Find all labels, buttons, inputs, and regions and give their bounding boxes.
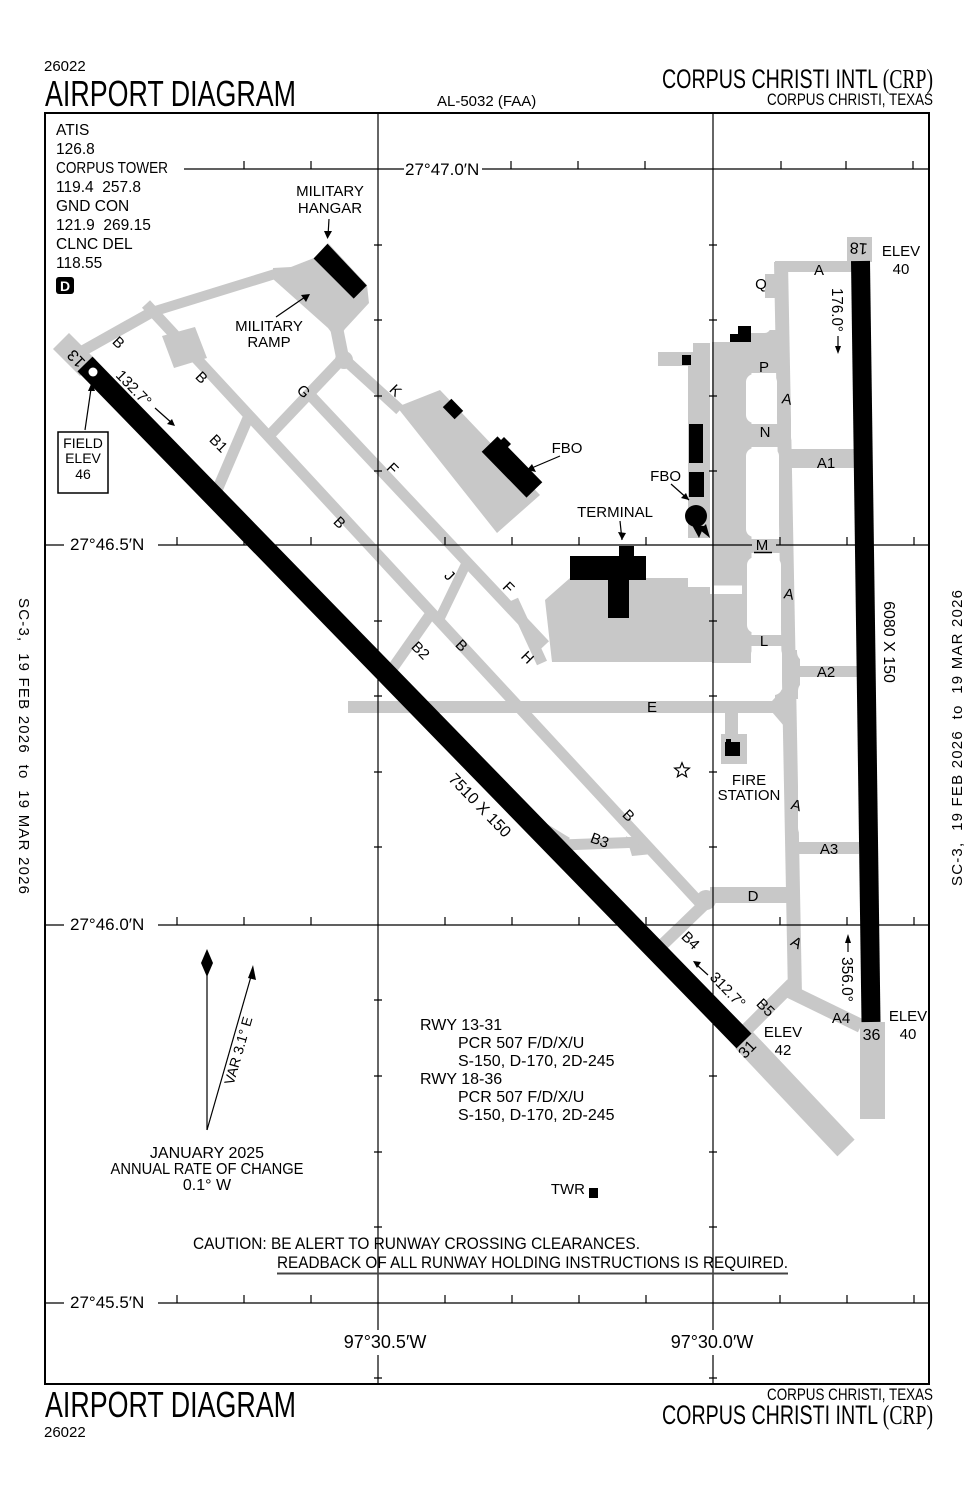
svg-text:ATIS: ATIS	[56, 122, 89, 139]
svg-text:ELEV: ELEV	[764, 1024, 802, 1041]
svg-text:CORPUS CHRISTI INTL (CRP): CORPUS CHRISTI INTL (CRP)	[662, 1400, 933, 1430]
svg-text:GND CON: GND CON	[56, 198, 129, 215]
svg-text:40: 40	[893, 261, 910, 278]
svg-text:119.4 257.8: 119.4 257.8	[56, 179, 141, 196]
svg-text:SC-3, 19 FEB 2026 to 19 MAR: SC-3, 19 FEB 2026 to 19 MAR 2026	[15, 598, 32, 894]
svg-text:6080 X 150: 6080 X 150	[880, 601, 897, 683]
svg-text:27°45.5′N: 27°45.5′N	[70, 1293, 144, 1312]
svg-text:STATION: STATION	[718, 787, 781, 804]
svg-text:AL-5032 (FAA): AL-5032 (FAA)	[437, 93, 536, 110]
svg-text:FBO: FBO	[650, 468, 681, 485]
svg-text:RAMP: RAMP	[247, 334, 290, 351]
svg-text:AIRPORT DIAGRAM: AIRPORT DIAGRAM	[45, 1384, 296, 1425]
svg-text:126.8: 126.8	[56, 141, 95, 158]
svg-text:ELEV: ELEV	[65, 450, 101, 466]
svg-text:SC-3, 19 FEB 2026 to 19 MAR: SC-3, 19 FEB 2026 to 19 MAR 2026	[949, 590, 966, 886]
svg-text:27°47.0′N: 27°47.0′N	[405, 160, 479, 179]
svg-text:E: E	[647, 699, 657, 716]
svg-text:TWR: TWR	[551, 1181, 585, 1198]
svg-text:MILITARY: MILITARY	[296, 183, 364, 200]
svg-text:46: 46	[75, 466, 91, 482]
svg-text:118.55: 118.55	[56, 255, 102, 272]
svg-text:CLNC DEL: CLNC DEL	[56, 236, 133, 253]
svg-text:97°30.0′W: 97°30.0′W	[671, 1332, 754, 1352]
svg-text:36: 36	[863, 1027, 881, 1044]
svg-text:ELEV: ELEV	[882, 243, 920, 260]
svg-text:CORPUS CHRISTI, TEXAS: CORPUS CHRISTI, TEXAS	[767, 90, 933, 109]
svg-text:MILITARY: MILITARY	[235, 318, 303, 335]
svg-text:D: D	[748, 888, 759, 905]
svg-text:L: L	[760, 633, 768, 650]
svg-text:RWY 13-31: RWY 13-31	[420, 1017, 502, 1034]
svg-text:JANUARY 2025: JANUARY 2025	[150, 1145, 264, 1162]
svg-text:D: D	[60, 278, 70, 294]
svg-text:READBACK OF ALL RUNWAY HOLDING: READBACK OF ALL RUNWAY HOLDING INSTRUCTI…	[277, 1253, 788, 1272]
svg-text:176.0°: 176.0°	[828, 288, 845, 332]
svg-text:AIRPORT DIAGRAM: AIRPORT DIAGRAM	[45, 73, 296, 114]
svg-text:S-150, D-170, 2D-245: S-150, D-170, 2D-245	[458, 1107, 615, 1124]
svg-text:S-150, D-170, 2D-245: S-150, D-170, 2D-245	[458, 1053, 615, 1070]
svg-text:RWY 18-36: RWY 18-36	[420, 1071, 502, 1088]
svg-text:40: 40	[900, 1026, 917, 1043]
svg-text:PCR 507 F/D/X/U: PCR 507 F/D/X/U	[458, 1089, 584, 1106]
svg-text:0.1° W: 0.1° W	[183, 1177, 232, 1194]
svg-text:ELEV: ELEV	[889, 1008, 927, 1025]
svg-text:18: 18	[849, 238, 868, 256]
svg-text:97°30.5′W: 97°30.5′W	[344, 1332, 427, 1352]
svg-text:A1: A1	[817, 455, 835, 472]
svg-text:Q: Q	[755, 276, 767, 293]
svg-text:A2: A2	[817, 664, 835, 681]
svg-text:A4: A4	[832, 1010, 850, 1027]
svg-text:HANGAR: HANGAR	[298, 200, 362, 217]
svg-text:CAUTION: BE ALERT TO RUNWAY CR: CAUTION: BE ALERT TO RUNWAY CROSSING CLE…	[193, 1234, 640, 1253]
svg-text:FBO: FBO	[552, 440, 583, 457]
svg-text:TERMINAL: TERMINAL	[577, 504, 653, 521]
svg-text:A: A	[814, 262, 824, 279]
svg-text:ANNUAL RATE OF CHANGE: ANNUAL RATE OF CHANGE	[111, 1161, 304, 1178]
svg-text:CORPUS TOWER: CORPUS TOWER	[56, 160, 168, 177]
svg-text:27°46.0′N: 27°46.0′N	[70, 915, 144, 934]
svg-text:N: N	[760, 424, 771, 441]
svg-text:26022: 26022	[44, 1424, 86, 1441]
svg-text:356.0°: 356.0°	[838, 957, 855, 1002]
svg-text:A3: A3	[820, 841, 838, 858]
svg-text:P: P	[759, 359, 769, 376]
svg-text:42: 42	[775, 1042, 792, 1059]
svg-text:27°46.5′N: 27°46.5′N	[70, 535, 144, 554]
svg-text:FIELD: FIELD	[63, 435, 103, 451]
svg-text:PCR 507 F/D/X/U: PCR 507 F/D/X/U	[458, 1035, 584, 1052]
svg-text:121.9 269.15: 121.9 269.15	[56, 217, 151, 234]
svg-text:M: M	[756, 537, 769, 554]
